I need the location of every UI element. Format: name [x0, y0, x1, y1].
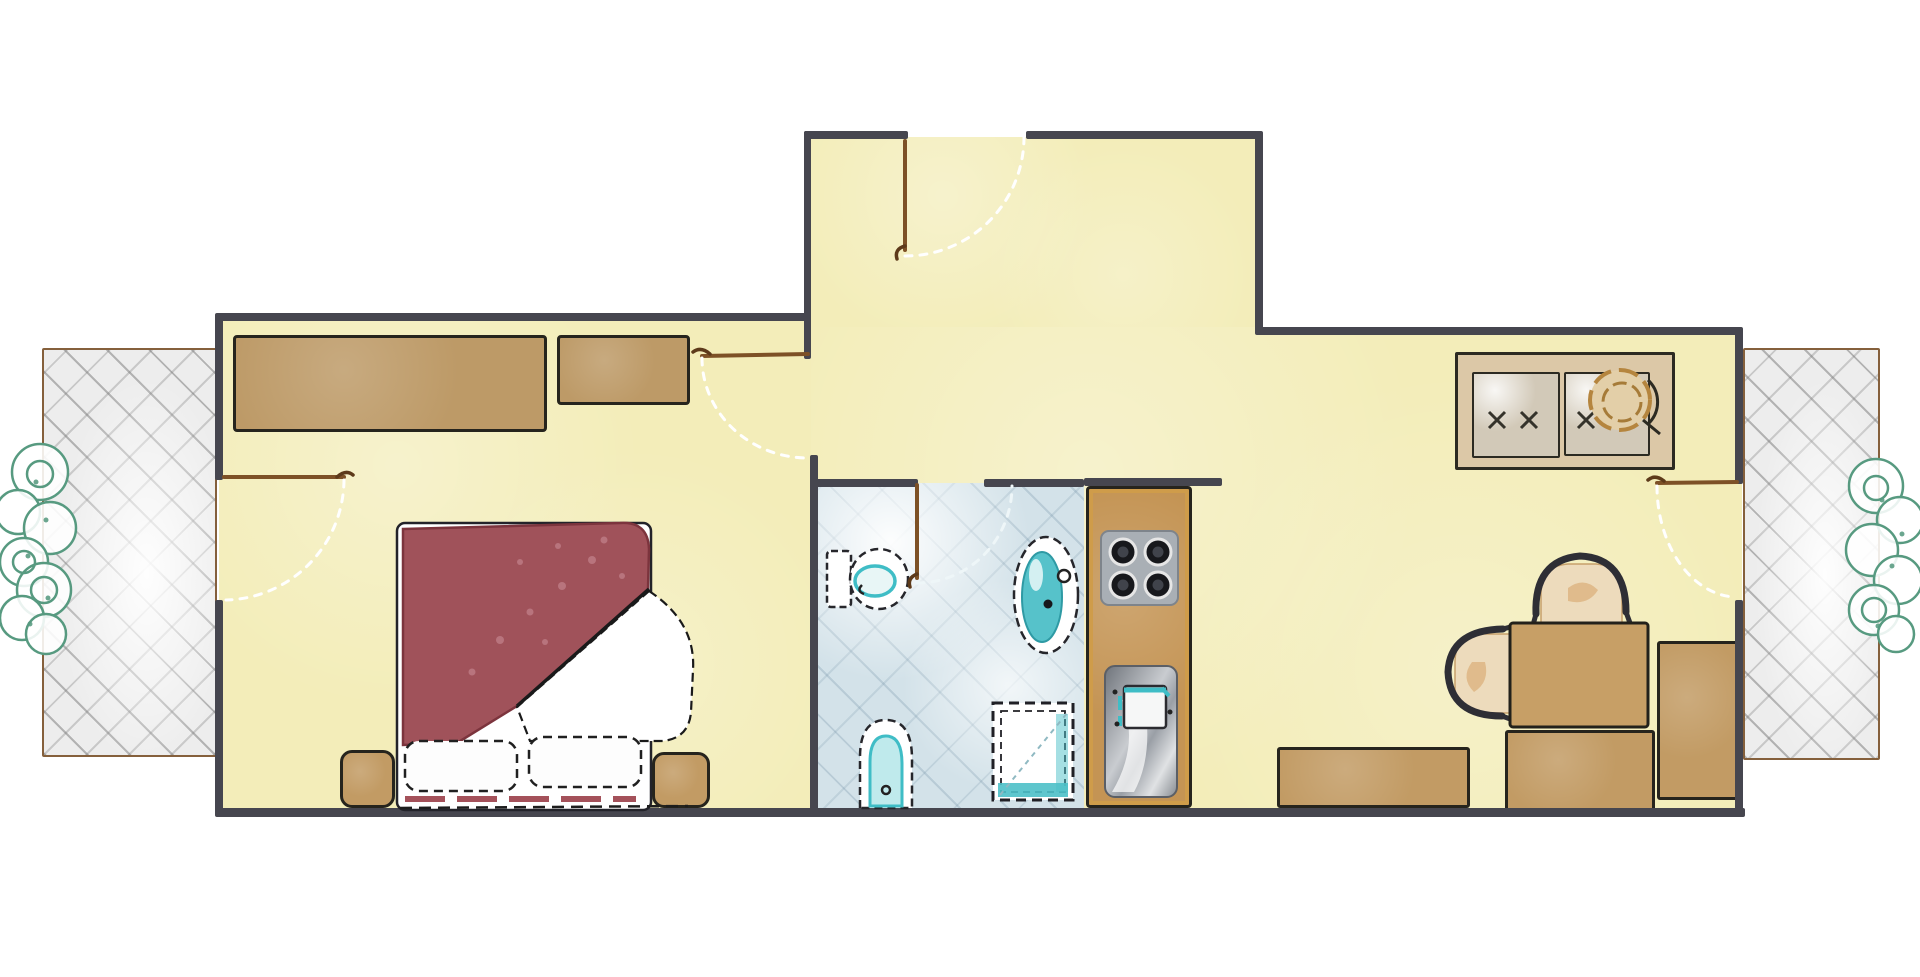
- x-handles-icon: [1489, 412, 1594, 428]
- sideboard-details: [1489, 370, 1660, 434]
- cooktop-icon: [1101, 531, 1178, 605]
- washbasin-icon: [1014, 537, 1078, 653]
- balcony-door-right: [1648, 477, 1737, 597]
- shrubs-left-icon: [0, 444, 76, 654]
- bathroom-door: [909, 485, 1012, 587]
- sketch-overlay: [0, 0, 1920, 977]
- floor-plan: [0, 0, 1920, 977]
- shrubs-right-icon: [1846, 459, 1920, 652]
- chair-left: [1448, 626, 1514, 720]
- chair-top: [1533, 556, 1630, 626]
- shower-icon: [993, 703, 1073, 800]
- toilet-icon: [827, 549, 908, 609]
- double-bed: [397, 523, 693, 810]
- bidet-icon: [860, 720, 912, 808]
- balcony-door-left: [224, 472, 353, 600]
- pillow-left: [405, 741, 517, 791]
- bedroom-door: [693, 349, 808, 458]
- dining-table: [1510, 623, 1648, 727]
- entry-door: [896, 137, 1024, 259]
- kitchen-sink-icon: [1105, 666, 1177, 797]
- basin-bowl-icon: [1590, 370, 1660, 434]
- pillow-right: [529, 737, 641, 787]
